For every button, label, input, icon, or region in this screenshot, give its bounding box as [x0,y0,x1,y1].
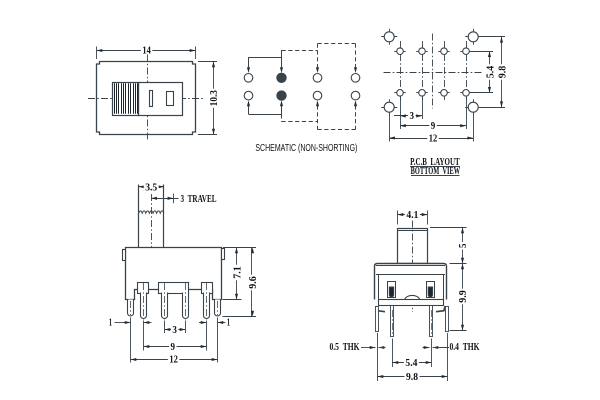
svg-text:5: 5 [458,244,469,249]
svg-text:SCHEMATIC (NON-SHORTING): SCHEMATIC (NON-SHORTING) [255,143,357,154]
svg-text:12: 12 [169,354,178,365]
svg-text:0.5 THK: 0.5 THK [330,342,360,353]
svg-text:14: 14 [142,45,151,56]
svg-text:1: 1 [227,318,230,329]
svg-text:3: 3 [410,111,415,122]
svg-text:9.6: 9.6 [248,276,259,289]
svg-text:12: 12 [429,134,438,145]
svg-text:9.9: 9.9 [458,290,469,303]
svg-text:9: 9 [171,342,176,353]
svg-text:3: 3 [172,325,177,336]
svg-text:9.8: 9.8 [498,66,509,79]
svg-text:5.4: 5.4 [405,358,417,369]
svg-text:5.4: 5.4 [486,66,497,79]
svg-text:9: 9 [431,121,436,132]
svg-text:1: 1 [109,318,112,329]
svg-text:0.4 THK: 0.4 THK [450,342,480,353]
svg-text:4.1: 4.1 [406,210,418,221]
svg-text:10.3: 10.3 [209,90,220,106]
svg-text:9.8: 9.8 [406,372,418,383]
svg-text:3 TRAVEL: 3 TRAVEL [181,194,217,205]
svg-text:7.1: 7.1 [232,266,243,279]
svg-text:3.5: 3.5 [145,183,157,194]
